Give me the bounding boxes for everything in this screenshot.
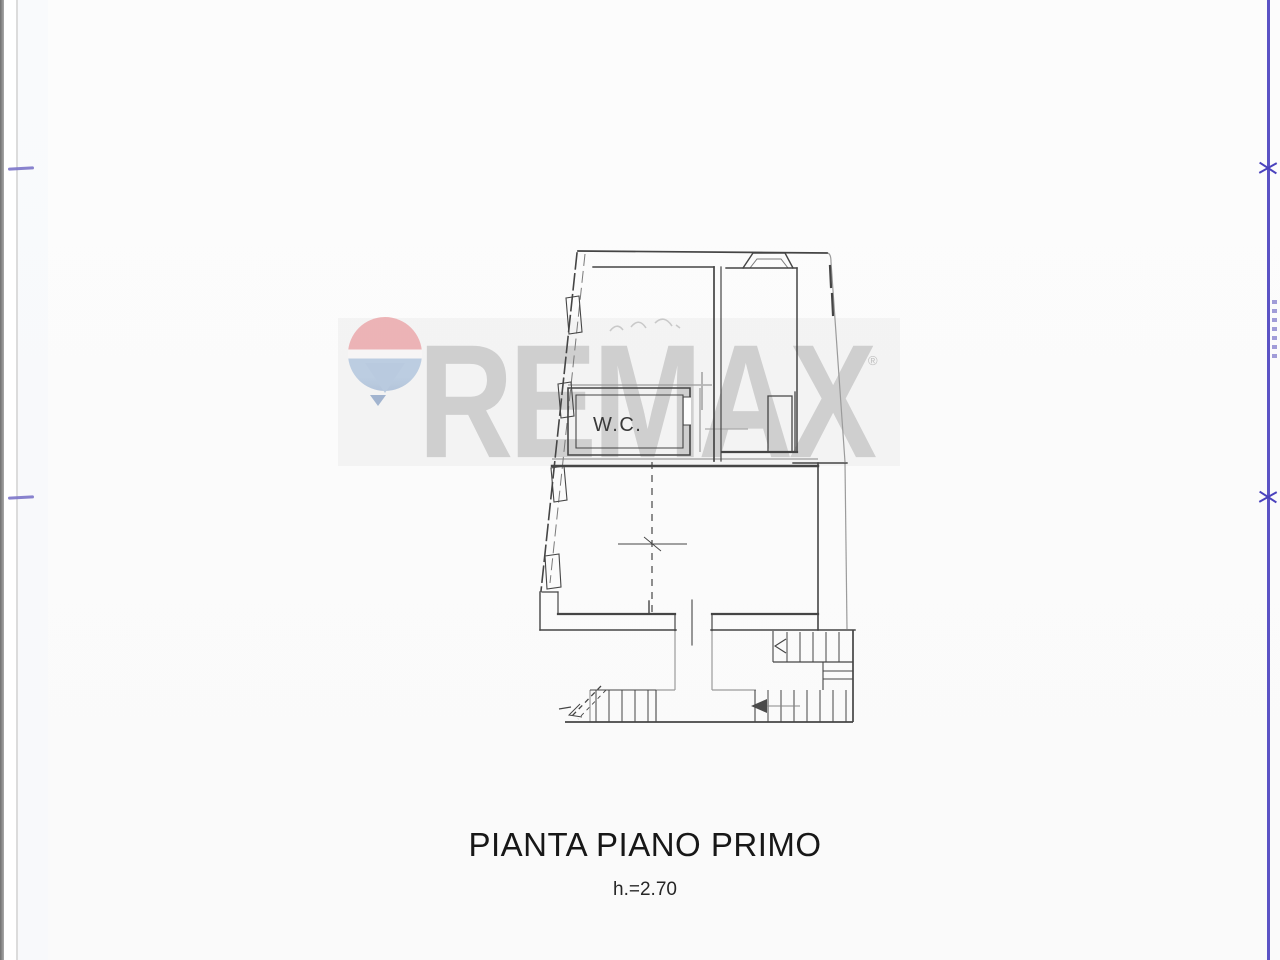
wc-room-label: W.C. xyxy=(593,414,642,436)
scanned-page: REMAX ® xyxy=(0,0,1280,960)
plan-height-note: h.=2.70 xyxy=(10,879,1280,901)
floor-plan-drawing: W.C. xyxy=(0,0,1280,960)
staircase xyxy=(559,630,853,722)
faded-room-label-marks xyxy=(610,319,680,331)
plan-walls xyxy=(540,251,855,645)
plan-mid-lines xyxy=(550,254,788,583)
dashed-partition xyxy=(618,462,687,612)
plan-light-lines xyxy=(552,253,847,722)
stair-direction-arrow xyxy=(751,699,767,713)
wc-door-gap xyxy=(684,397,691,425)
plan-title: PIANTA PIANO PRIMO xyxy=(10,826,1280,864)
